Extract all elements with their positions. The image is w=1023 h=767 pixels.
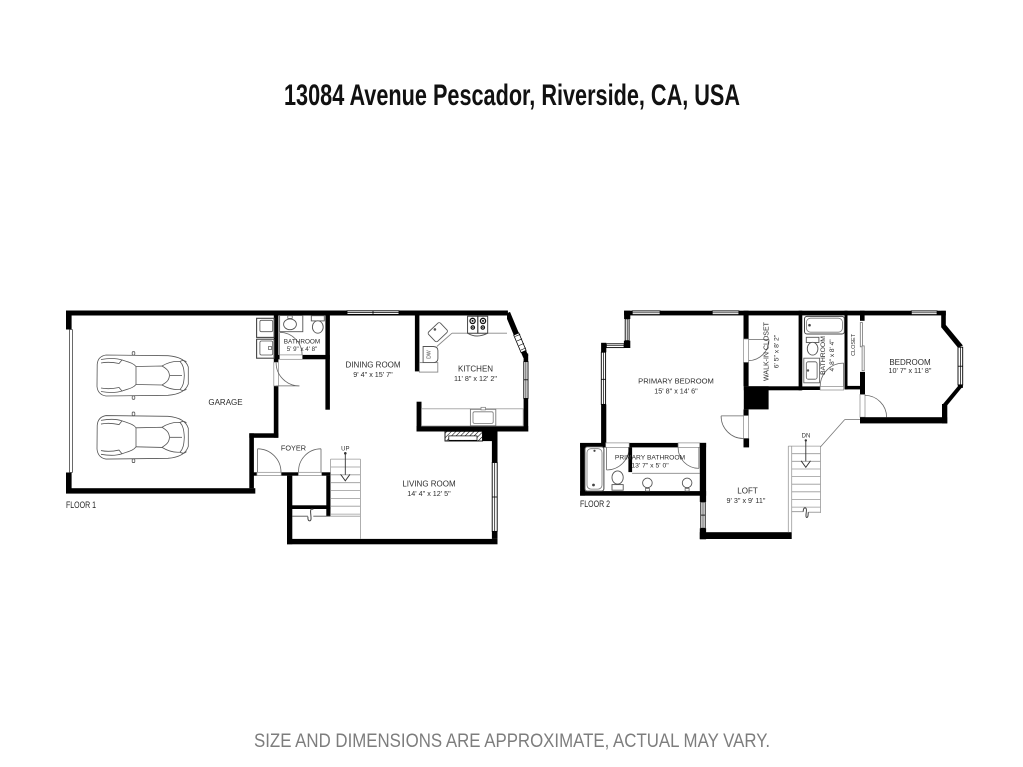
svg-text:BATHROOM: BATHROOM [820,336,827,375]
svg-text:DN: DN [802,433,811,439]
svg-text:UP: UP [341,446,349,452]
svg-text:4' 8" x 8' 4": 4' 8" x 8' 4" [829,339,836,372]
svg-text:CLOSET: CLOSET [851,333,857,356]
svg-text:13' 7" x 5' 0": 13' 7" x 5' 0" [631,462,669,469]
svg-text:FLOOR 2: FLOOR 2 [580,499,610,509]
svg-text:FOYER: FOYER [281,444,306,453]
svg-text:9' 4" x 15' 7": 9' 4" x 15' 7" [353,370,393,379]
svg-text:WALK-IN CLOSET: WALK-IN CLOSET [764,321,771,381]
svg-text:PRIMARY BATHROOM: PRIMARY BATHROOM [615,454,686,461]
svg-text:DINING ROOM: DINING ROOM [345,361,400,370]
svg-text:15' 8" x 14' 6": 15' 8" x 14' 6" [654,387,698,396]
svg-text:13084 Avenue Pescador, Riversi: 13084 Avenue Pescador, Riverside, CA, US… [284,79,740,112]
svg-text:KITCHEN: KITCHEN [458,365,493,374]
svg-text:9' 3" x 9' 11": 9' 3" x 9' 11" [727,496,766,505]
svg-text:LOFT: LOFT [737,487,758,496]
svg-text:6' 5" x 8' 2": 6' 5" x 8' 2" [774,334,781,368]
svg-text:14' 4" x 12' 5": 14' 4" x 12' 5" [407,489,451,498]
svg-text:DW: DW [426,350,432,359]
svg-text:GARAGE: GARAGE [208,398,242,407]
svg-text:FLOOR 1: FLOOR 1 [66,500,96,510]
svg-text:SIZE AND DIMENSIONS ARE APPROX: SIZE AND DIMENSIONS ARE APPROXIMATE, ACT… [254,730,770,752]
svg-text:5' 9" x 4' 8": 5' 9" x 4' 8" [287,346,318,353]
svg-text:10' 7" x 11' 8": 10' 7" x 11' 8" [889,366,932,375]
svg-text:LIVING ROOM: LIVING ROOM [402,480,456,489]
svg-text:11' 8" x 12' 2": 11' 8" x 12' 2" [454,374,497,383]
svg-text:PRIMARY BEDROOM: PRIMARY BEDROOM [638,377,714,386]
svg-text:BATHROOM: BATHROOM [284,339,320,346]
